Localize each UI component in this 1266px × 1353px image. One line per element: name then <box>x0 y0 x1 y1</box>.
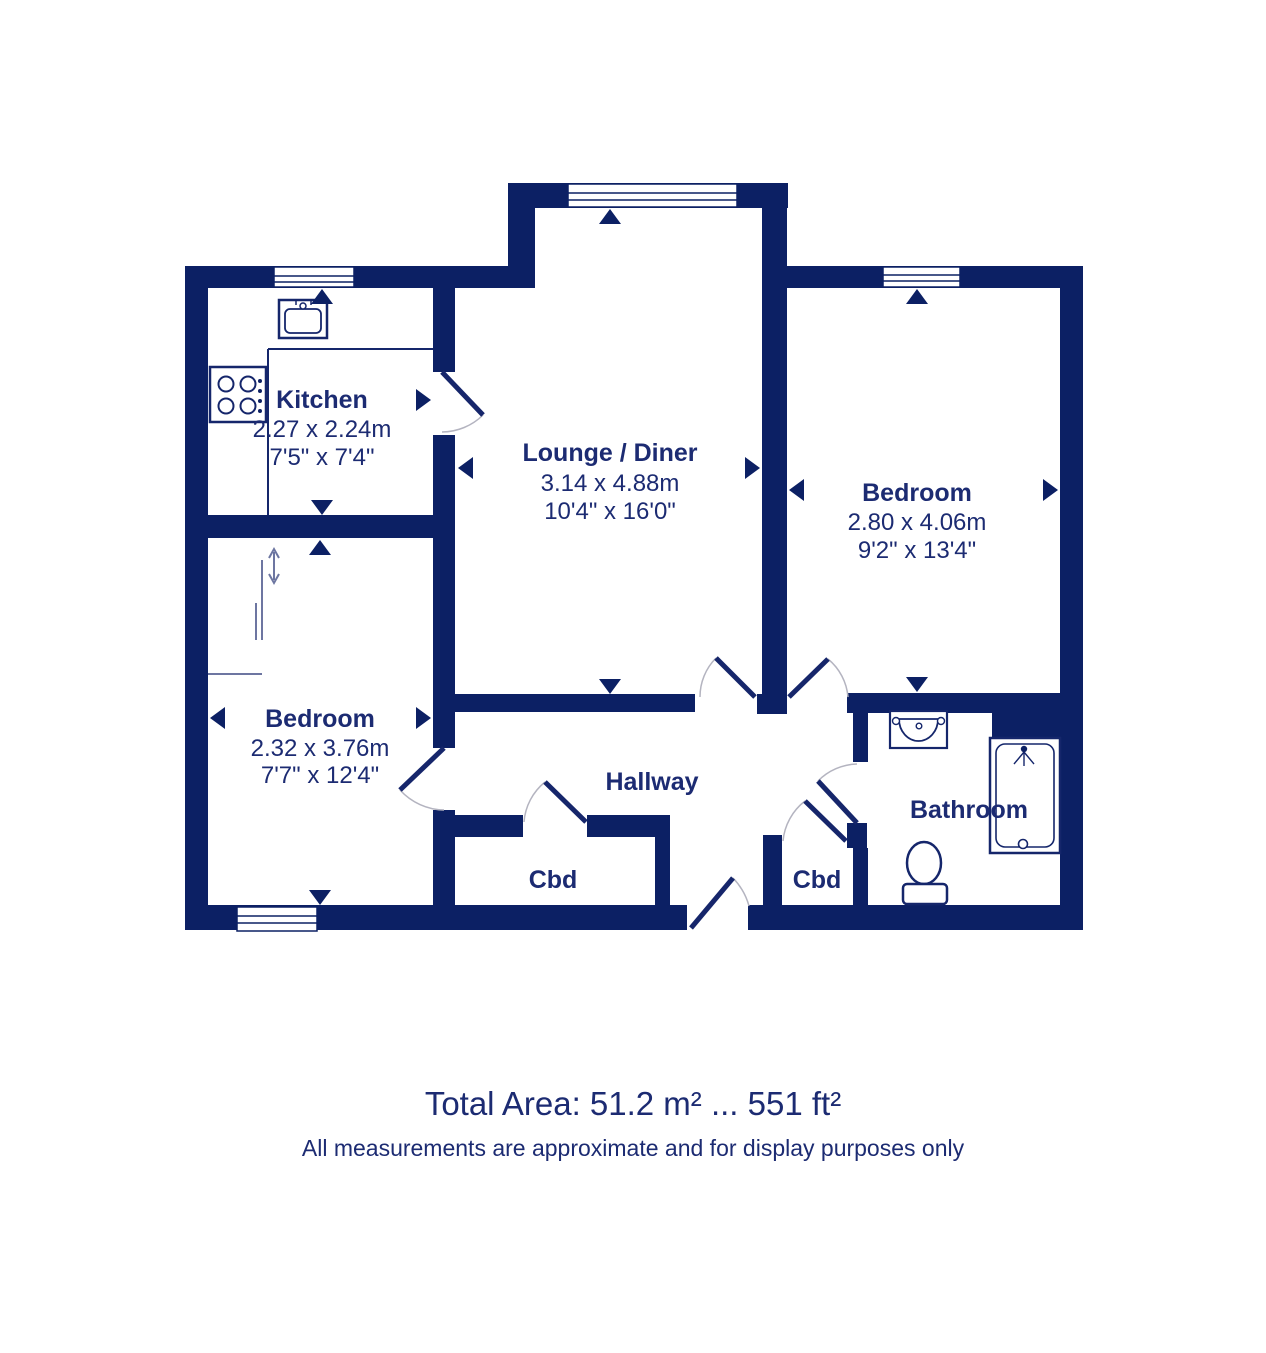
wardrobe-icon <box>208 549 279 674</box>
shower-head <box>1021 746 1027 752</box>
bedroom-right-window <box>883 267 960 287</box>
hob-outline <box>210 367 266 422</box>
floorplan-drawing: Kitchen 2.27 x 2.24m 7'5" x 7'4" Lounge … <box>0 0 1266 1353</box>
basin-tap <box>938 718 945 725</box>
floorplan-page: Kitchen 2.27 x 2.24m 7'5" x 7'4" Lounge … <box>0 0 1266 1353</box>
dimension-arrow-left <box>458 457 473 479</box>
door-swing-arc <box>733 878 749 906</box>
kitchen-window <box>274 267 354 287</box>
room-dim-m-kitchen: 2.27 x 2.24m <box>253 416 392 443</box>
dimension-arrow-down <box>599 679 621 694</box>
dimension-arrow-right <box>1043 479 1058 501</box>
room-label-bedroom-right: Bedroom <box>862 479 972 507</box>
room-label-bedroom-left: Bedroom <box>265 705 375 733</box>
kitchen-sink-icon <box>279 300 327 338</box>
room-dim-ft-bedroom-right: 9'2" x 13'4" <box>858 537 976 564</box>
room-dim-ft-bedroom-left: 7'7" x 12'4" <box>261 762 379 789</box>
footer: Total Area: 51.2 m² ... 551 ft² All meas… <box>302 1085 965 1161</box>
door-leaf <box>716 658 755 697</box>
door-swing-arc <box>400 790 444 810</box>
basin-tap <box>893 718 900 725</box>
room-dim-ft-kitchen: 7'5" x 7'4" <box>270 444 375 471</box>
wall-segment <box>185 515 455 538</box>
lounge-window <box>568 184 737 207</box>
dimension-arrow-up <box>599 209 621 224</box>
bedroom-right-door <box>789 659 848 697</box>
wall-segment <box>847 823 867 848</box>
toilet-tank <box>903 884 947 904</box>
bedroom-left-door <box>400 748 444 810</box>
bedroom-left-window <box>237 907 317 931</box>
bathtub-drain <box>1019 840 1028 849</box>
sink-basin <box>285 309 321 333</box>
wall-segment <box>762 183 787 694</box>
window-frame <box>568 184 737 207</box>
door-swing-arc <box>783 801 805 841</box>
wall-segment <box>587 815 670 837</box>
door-swing-arc <box>442 415 483 432</box>
dimension-arrow-right <box>416 707 431 729</box>
room-label-cupboard-left: Cbd <box>529 866 578 894</box>
toilet-bowl <box>907 842 941 884</box>
door-swing-arc <box>818 764 857 781</box>
basin-drain <box>916 723 922 729</box>
hob-control-dot <box>258 379 262 383</box>
door-leaf <box>442 372 483 415</box>
hob-control-dot <box>258 389 262 393</box>
dimension-arrow-down <box>311 500 333 515</box>
room-label-cupboard-right: Cbd <box>793 866 842 894</box>
dimension-arrow-down <box>906 677 928 692</box>
wall-segment <box>853 848 868 910</box>
hob-icon <box>210 367 266 422</box>
wall-segment <box>757 694 787 714</box>
dimension-arrow-left <box>789 479 804 501</box>
room-dim-m-bedroom-left: 2.32 x 3.76m <box>251 735 390 762</box>
door-leaf <box>400 748 444 790</box>
wall-segment <box>433 288 455 372</box>
total-area-text: Total Area: 51.2 m² ... 551 ft² <box>425 1085 841 1122</box>
room-label-lounge: Lounge / Diner <box>523 439 698 467</box>
room-dim-m-lounge: 3.14 x 4.88m <box>541 470 680 497</box>
wall-segment <box>853 693 868 762</box>
wall-segment <box>433 815 523 837</box>
bathroom-basin-icon <box>890 711 947 748</box>
door-swing-arc <box>524 782 545 822</box>
toilet-icon <box>903 842 947 904</box>
dimension-arrow-up <box>906 289 928 304</box>
dimension-arrow-right <box>745 457 760 479</box>
dimension-arrow-left <box>210 707 225 729</box>
cupboard-left-door <box>524 782 586 822</box>
window-frame <box>237 907 317 931</box>
bathroom-boxed-duct <box>992 710 1060 738</box>
wall-segment <box>748 905 1083 930</box>
room-label-hallway: Hallway <box>605 768 698 796</box>
lounge-door <box>700 658 755 697</box>
entrance-door <box>691 878 749 928</box>
wall-segment <box>1060 266 1083 930</box>
wall-segment <box>185 266 535 288</box>
hob-control-dot <box>258 399 262 403</box>
wall-segment <box>655 837 670 907</box>
dimension-arrow-up <box>309 540 331 555</box>
room-dim-m-bedroom-right: 2.80 x 4.06m <box>848 509 987 536</box>
wall-segment <box>433 694 695 712</box>
bathroom-door <box>818 764 857 823</box>
sink-tap <box>300 303 306 309</box>
door-leaf <box>789 659 828 697</box>
room-dim-ft-lounge: 10'4" x 16'0" <box>544 498 676 525</box>
window-frame <box>274 267 354 287</box>
door-leaf <box>545 782 586 822</box>
dimension-arrow-right <box>416 389 431 411</box>
dimension-arrow-down <box>309 890 331 905</box>
hob-control-dot <box>258 409 262 413</box>
wall-segment <box>185 266 208 930</box>
cupboard-right-door <box>783 801 846 841</box>
disclaimer-text: All measurements are approximate and for… <box>302 1135 965 1161</box>
door-leaf <box>691 878 733 928</box>
kitchen-door <box>442 372 483 432</box>
door-swing-arc <box>700 658 716 697</box>
door-swing-arc <box>828 659 848 697</box>
window-frame <box>883 267 960 287</box>
wall-segment <box>763 835 782 910</box>
dimension-arrow-up <box>311 289 333 304</box>
room-label-bathroom: Bathroom <box>910 796 1028 824</box>
room-label-kitchen: Kitchen <box>276 386 368 414</box>
